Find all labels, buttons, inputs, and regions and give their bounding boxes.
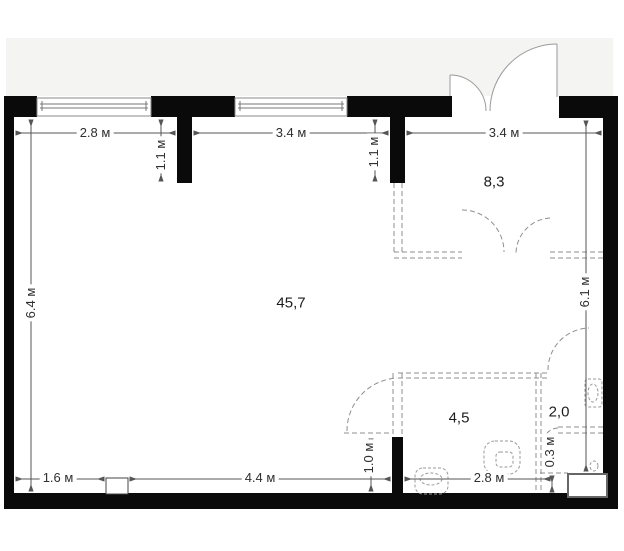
wall-pier-left <box>177 117 192 183</box>
dimension-label-corner-niche: 0.3 м <box>543 434 557 471</box>
bottom-wall-column <box>106 478 128 494</box>
room-area-label-wc: 2,0 <box>549 404 570 421</box>
floor-plan-drawing <box>0 0 624 551</box>
dimension-label-bottom-right: 2.8 м <box>471 471 508 485</box>
dimension-label-left-side: 6.4 м <box>24 285 38 322</box>
hallway-double-door-swing <box>462 210 504 252</box>
dimension-label-bottom-left: 1.6 м <box>40 471 77 485</box>
ventilation-shaft <box>568 474 607 497</box>
floor-drain <box>590 461 598 471</box>
dimension-label-top-mid: 3.4 м <box>273 126 310 140</box>
window-left <box>37 98 151 116</box>
floor-plan: 2.8 м 3.4 м 3.4 м 1.1 м 1.1 м 6.4 м 6.1 … <box>0 0 624 551</box>
room-area-label-hallway: 8,3 <box>484 174 505 191</box>
dimension-label-top-left: 2.8 м <box>77 126 114 140</box>
planned-partitions-dashed <box>344 183 603 493</box>
wc-door-swing <box>548 328 589 370</box>
bathroom-door-swing <box>347 378 397 431</box>
wall-pier-right <box>390 117 405 183</box>
room-area-label-living-room: 45,7 <box>276 295 305 312</box>
washbasin-fixture <box>415 468 448 494</box>
dimension-label-top-right: 3.4 м <box>486 126 523 140</box>
dimension-label-pier-left: 1.1 м <box>154 137 168 174</box>
dimension-label-bath-door: 1.0 м <box>362 440 376 477</box>
wall-stub-bathroom <box>392 437 403 494</box>
room-area-label-bathroom: 4,5 <box>449 410 470 427</box>
dimension-label-pier-right: 1.1 м <box>367 134 381 171</box>
sink-fixture <box>585 379 602 407</box>
dimension-label-bottom-mid: 4.4 м <box>242 471 279 485</box>
window-right <box>235 98 347 116</box>
dimension-lines <box>16 120 601 492</box>
dimension-label-right-side: 6.1 м <box>578 274 592 311</box>
load-bearing-walls <box>4 96 618 509</box>
